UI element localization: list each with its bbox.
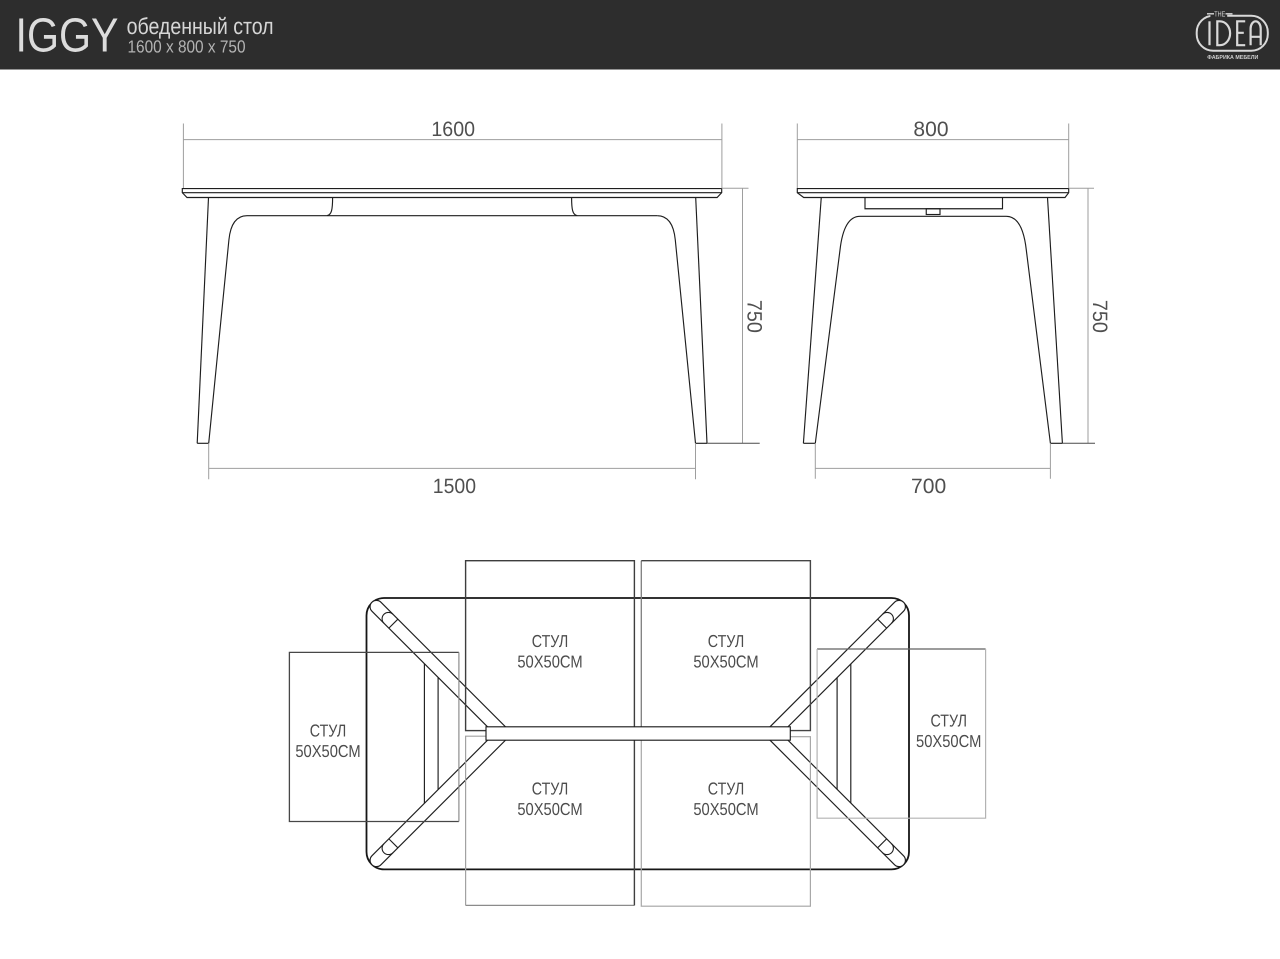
svg-text:1500: 1500 <box>433 475 476 498</box>
svg-text:50Х50СМ: 50Х50СМ <box>693 651 758 671</box>
svg-text:800: 800 <box>913 118 948 141</box>
svg-text:IGGY: IGGY <box>16 10 119 63</box>
svg-text:СТУЛ: СТУЛ <box>532 631 569 651</box>
svg-text:СТУЛ: СТУЛ <box>930 711 967 731</box>
svg-text:ФАБРИКА МЕБЕЛИ: ФАБРИКА МЕБЕЛИ <box>1207 54 1258 61</box>
svg-text:СТУЛ: СТУЛ <box>532 779 569 799</box>
svg-text:50Х50СМ: 50Х50СМ <box>517 799 582 819</box>
svg-text:750: 750 <box>743 300 766 333</box>
svg-text:50Х50СМ: 50Х50СМ <box>295 741 360 761</box>
svg-text:1600: 1600 <box>431 118 475 141</box>
svg-text:50Х50СМ: 50Х50СМ <box>517 651 582 671</box>
svg-text:СТУЛ: СТУЛ <box>310 721 347 741</box>
svg-text:THE: THE <box>1214 10 1225 19</box>
svg-text:обеденный стол: обеденный стол <box>127 13 274 39</box>
svg-text:1600 x 800 x 750: 1600 x 800 x 750 <box>128 37 246 57</box>
svg-text:СТУЛ: СТУЛ <box>708 779 745 799</box>
svg-text:СТУЛ: СТУЛ <box>708 631 745 651</box>
svg-text:50Х50СМ: 50Х50СМ <box>693 799 758 819</box>
svg-text:750: 750 <box>1088 300 1111 333</box>
svg-text:700: 700 <box>911 475 946 498</box>
svg-text:50Х50СМ: 50Х50СМ <box>916 731 981 751</box>
